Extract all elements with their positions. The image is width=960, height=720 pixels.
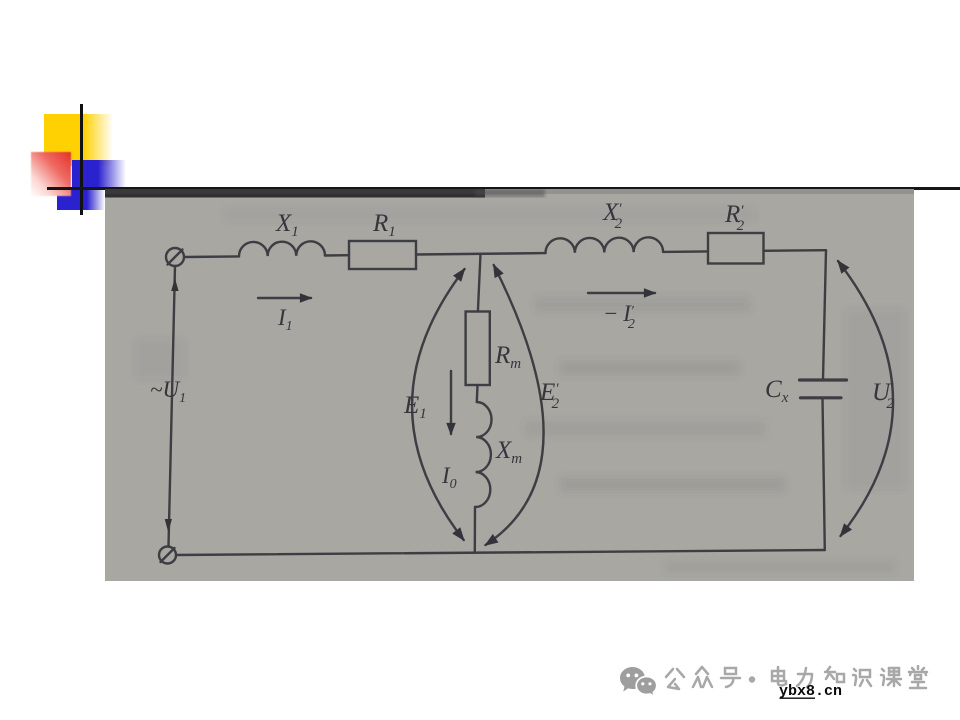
svg-text:ybx8.cn: ybx8.cn xyxy=(779,683,842,700)
